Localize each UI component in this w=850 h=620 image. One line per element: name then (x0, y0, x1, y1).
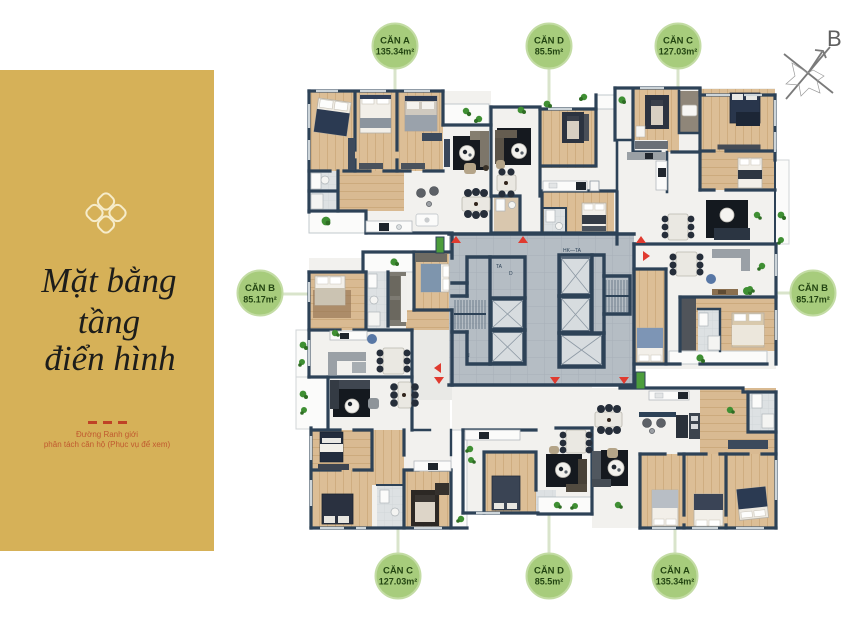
svg-text:B: B (827, 26, 842, 51)
svg-text:127.03m²: 127.03m² (659, 47, 698, 57)
svg-text:CĂN A: CĂN A (380, 36, 410, 47)
svg-text:85.5m²: 85.5m² (535, 47, 564, 57)
svg-text:TA: TA (496, 264, 503, 270)
svg-text:CĂN D: CĂN D (534, 36, 564, 47)
svg-text:CĂN B: CĂN B (245, 283, 275, 294)
svg-text:N: N (466, 353, 470, 359)
svg-text:CĂN D: CĂN D (534, 566, 564, 577)
svg-text:85.17m²: 85.17m² (796, 295, 830, 305)
svg-text:85.17m²: 85.17m² (243, 295, 277, 305)
svg-text:CĂN C: CĂN C (383, 566, 413, 577)
svg-text:CĂN C: CĂN C (663, 36, 693, 47)
svg-text:CĂN B: CĂN B (798, 283, 828, 294)
svg-text:Mặt bằng: Mặt bằng (40, 261, 176, 300)
svg-text:phân tách căn hộ (Phục vụ để x: phân tách căn hộ (Phục vụ để xem) (44, 440, 171, 449)
svg-text:CĂN A: CĂN A (660, 566, 690, 577)
svg-text:135.34m²: 135.34m² (376, 47, 415, 57)
svg-text:127.03m²: 127.03m² (379, 577, 418, 587)
svg-text:điển hình: điển hình (44, 339, 175, 378)
svg-text:D: D (509, 271, 513, 277)
svg-text:85.5m²: 85.5m² (535, 577, 564, 587)
svg-text:135.34m²: 135.34m² (656, 577, 695, 587)
svg-text:tầng: tầng (78, 302, 140, 341)
svg-text:HK—TA: HK—TA (563, 248, 582, 254)
svg-text:Đường Ranh giới: Đường Ranh giới (76, 430, 138, 439)
